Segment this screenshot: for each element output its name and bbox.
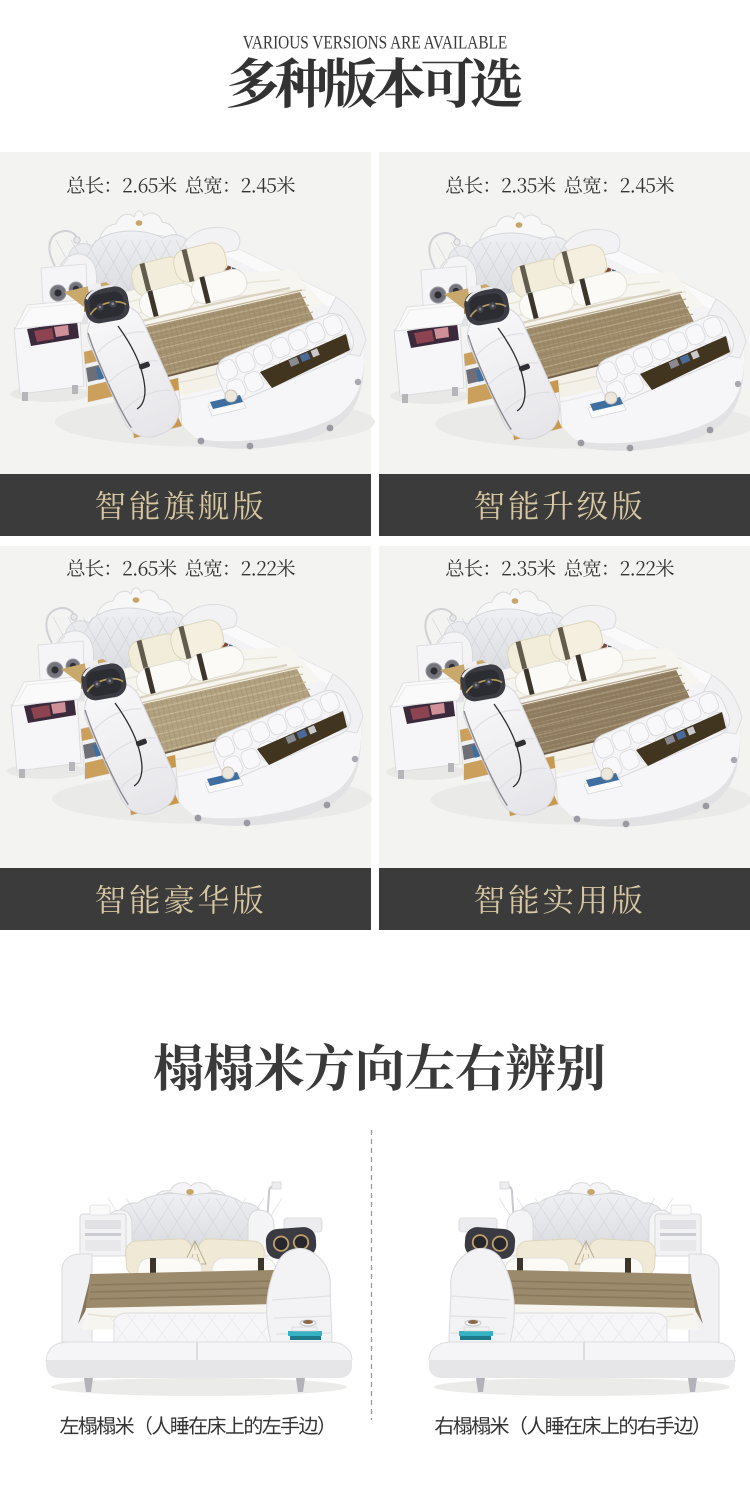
svg-text:VARIOUS VERSIONS ARE AVAILABLE: VARIOUS VERSIONS ARE AVAILABLE <box>243 31 507 53</box>
